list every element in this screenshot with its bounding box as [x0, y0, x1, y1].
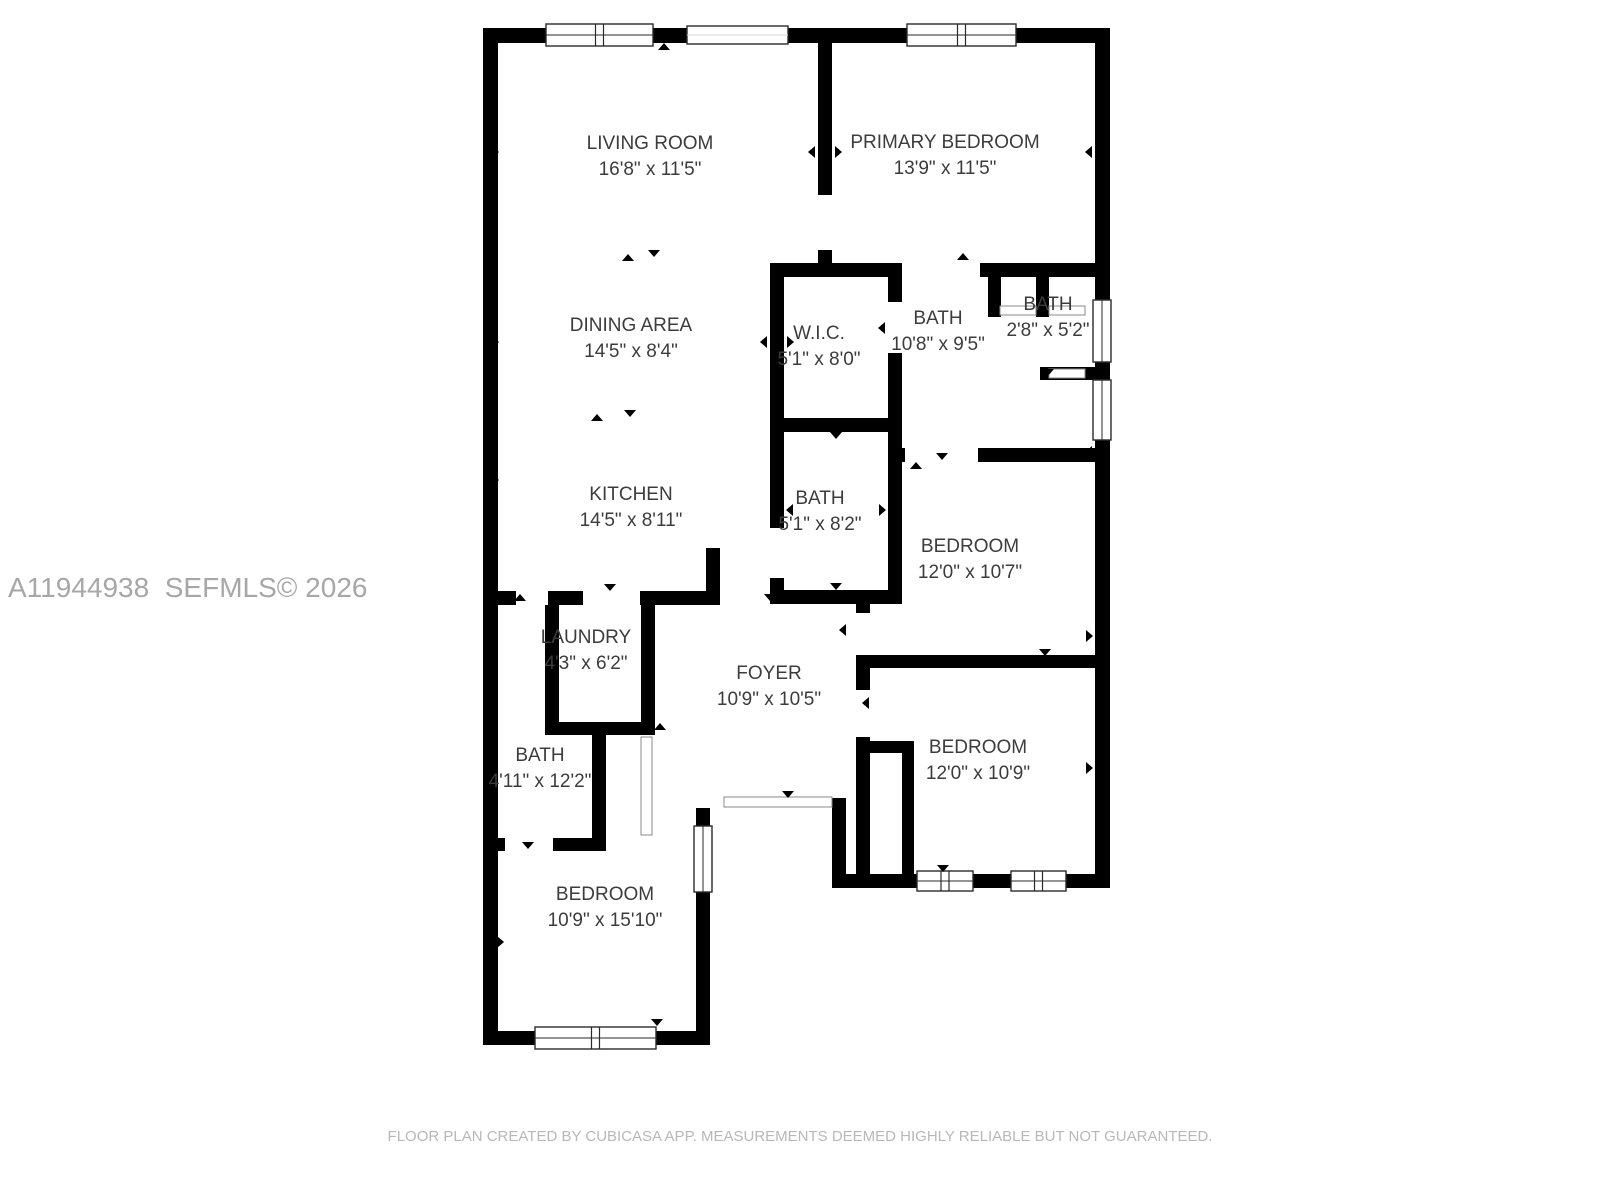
room-label-bedroom-8: BEDROOM12'0" x 10'7" — [918, 536, 1022, 583]
wall-segment — [856, 655, 1110, 668]
door-direction-arrow — [624, 410, 636, 417]
room-label-bath-11: BATH4'11" x 12'2" — [489, 745, 592, 792]
door-direction-arrow — [936, 453, 948, 460]
room-dimensions: 10'9" x 15'10" — [548, 910, 663, 931]
room-dimensions: 12'0" x 10'9" — [926, 763, 1030, 784]
wall-segment — [548, 591, 583, 605]
wall-segment — [856, 604, 870, 613]
room-name: BATH — [1023, 294, 1072, 315]
room-dimensions: 5'1" x 8'2" — [778, 514, 861, 535]
room-dimensions: 4'3" x 6'2" — [544, 653, 627, 674]
wall-segment — [980, 263, 1110, 277]
room-name: LIVING ROOM — [587, 133, 714, 154]
door-direction-arrow — [591, 414, 603, 421]
wall-segment — [770, 590, 902, 604]
room-label-bedroom-13: BEDROOM10'9" x 15'10" — [548, 884, 663, 931]
door-direction-arrow — [879, 504, 886, 516]
wall-segment — [592, 722, 606, 851]
room-dimensions: 10'8" x 9'5" — [891, 334, 985, 355]
door-direction-arrow — [604, 584, 616, 591]
room-label-living-room-0: LIVING ROOM16'8" x 11'5" — [587, 133, 714, 180]
room-dimensions: 5'1" x 8'0" — [777, 349, 860, 370]
room-label-w-i-c--3: W.I.C.5'1" x 8'0" — [777, 323, 860, 370]
room-name: BEDROOM — [929, 737, 1027, 758]
room-label-kitchen-6: KITCHEN14'5" x 8'11" — [580, 484, 683, 531]
door-opening — [724, 797, 832, 807]
room-name: BATH — [913, 308, 962, 329]
room-label-foyer-10: FOYER10'9" x 10'5" — [717, 663, 821, 710]
wall-segment — [640, 591, 706, 605]
wall-segment — [483, 28, 498, 1045]
wall-segment — [770, 277, 784, 528]
wall-segment — [553, 838, 606, 851]
door-direction-arrow — [760, 336, 767, 348]
room-name: BATH — [515, 745, 564, 766]
room-name: FOYER — [736, 663, 801, 684]
door-direction-arrow — [830, 583, 842, 590]
door-direction-arrow — [1086, 762, 1093, 774]
door-direction-arrow — [910, 462, 922, 469]
room-name: PRIMARY BEDROOM — [850, 132, 1039, 153]
door-direction-arrow — [1086, 630, 1093, 642]
wall-segment — [888, 353, 902, 590]
room-name: BEDROOM — [556, 884, 654, 905]
room-dimensions: 12'0" x 10'7" — [918, 562, 1022, 583]
room-name: W.I.C. — [793, 323, 845, 344]
door-direction-arrow — [522, 842, 534, 849]
door-direction-arrow — [835, 146, 842, 158]
room-dimensions: 14'5" x 8'4" — [584, 341, 678, 362]
wall-segment — [988, 277, 1001, 317]
wall-segment — [856, 737, 870, 874]
wall-segment — [497, 838, 505, 851]
wall-segment — [888, 277, 902, 302]
door-direction-arrow — [658, 43, 670, 50]
door-direction-arrow — [957, 253, 969, 260]
door-direction-arrow — [622, 254, 634, 261]
door-direction-arrow — [839, 624, 846, 636]
room-name: BATH — [795, 488, 844, 509]
door-opening — [1049, 369, 1085, 378]
wall-segment — [770, 263, 902, 277]
room-dimensions: 16'8" x 11'5" — [599, 159, 702, 180]
door-direction-arrow — [830, 432, 842, 439]
door-direction-arrow — [651, 1019, 663, 1026]
door-direction-arrow — [862, 697, 869, 709]
door-direction-arrow — [497, 936, 504, 948]
room-dimensions: 10'9" x 10'5" — [717, 689, 821, 710]
door-direction-arrow — [878, 322, 885, 334]
room-name: BEDROOM — [921, 536, 1019, 557]
door-direction-arrow — [654, 723, 666, 730]
room-name: KITCHEN — [589, 484, 672, 505]
door-opening — [641, 737, 652, 835]
room-name: DINING AREA — [570, 315, 693, 336]
room-dimensions: 13'9" x 11'5" — [894, 158, 997, 179]
floor-plan-drawing: LIVING ROOM16'8" x 11'5"PRIMARY BEDROOM1… — [0, 0, 1600, 1200]
wall-segment — [483, 591, 516, 605]
room-label-bedroom-12: BEDROOM12'0" x 10'9" — [926, 737, 1030, 784]
door-direction-arrow — [1085, 146, 1092, 158]
wall-segment — [832, 798, 846, 888]
wall-segment — [902, 741, 914, 875]
wall-segment — [888, 448, 905, 462]
cubicasa-disclaimer: FLOOR PLAN CREATED BY CUBICASA APP. MEAS… — [0, 1128, 1600, 1145]
door-direction-arrow — [1039, 649, 1051, 656]
room-dimensions: 4'11" x 12'2" — [489, 771, 592, 792]
room-dimensions: 2'8" x 5'2" — [1006, 320, 1089, 341]
room-label-bath-4: BATH10'8" x 9'5" — [891, 308, 985, 355]
wall-segment — [706, 548, 720, 605]
wall-segment — [641, 605, 655, 735]
room-dimensions: 14'5" x 8'11" — [580, 510, 683, 531]
room-name: LAUNDRY — [541, 627, 632, 648]
door-direction-arrow — [648, 250, 660, 257]
room-label-bath-5: BATH2'8" x 5'2" — [1006, 294, 1089, 341]
room-label-primary-bedroom-1: PRIMARY BEDROOM13'9" x 11'5" — [850, 132, 1039, 179]
wall-segment — [818, 28, 832, 195]
door-direction-arrow — [808, 146, 815, 158]
room-label-dining-area-2: DINING AREA14'5" x 8'4" — [570, 315, 693, 362]
floorplan-page: A11944938 SEFMLS© 2026 LIVING ROOM16'8" … — [0, 0, 1600, 1200]
wall-segment — [770, 418, 902, 432]
